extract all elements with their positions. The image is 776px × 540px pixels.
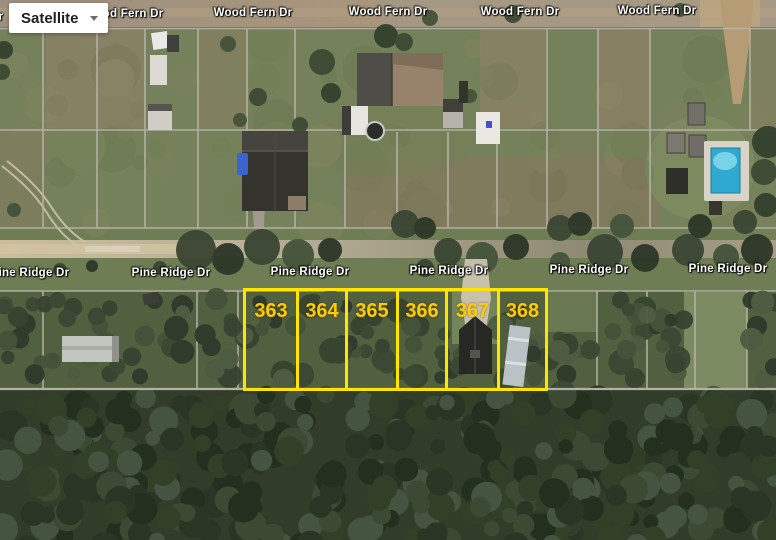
shed-mid-gray <box>443 112 463 128</box>
map-type-label: Satellite <box>21 10 79 27</box>
trailer-north <box>150 55 167 85</box>
parcel-366[interactable]: 366 <box>399 291 445 388</box>
parcel-number: 366 <box>405 301 438 321</box>
parcel-367[interactable]: 367 <box>448 291 497 388</box>
parcel-364[interactable]: 364 <box>299 291 345 388</box>
shed-east-3 <box>689 135 706 157</box>
parcel-number: 367 <box>456 301 489 321</box>
vehicle-van <box>151 31 169 50</box>
parcel-number: 364 <box>305 301 338 321</box>
parcel-368[interactable]: 368 <box>500 291 545 388</box>
trampoline <box>366 122 384 140</box>
parcel-outline: 363 364 365 366 367 368 <box>243 288 548 391</box>
parcel-number: 363 <box>254 301 287 321</box>
vehicle-dark <box>167 35 179 52</box>
satellite-map[interactable]: Wood Fern Dr Wood Fern Dr Wood Fern Dr W… <box>0 0 776 540</box>
vehicle-blue-car <box>237 153 248 175</box>
satellite-imagery <box>0 0 776 540</box>
trailer-home-west <box>62 336 119 362</box>
map-type-button[interactable]: Satellite <box>9 3 108 33</box>
house-main <box>242 131 308 211</box>
house-north <box>357 53 443 106</box>
shed-east-1 <box>688 103 705 125</box>
vehicle-truck <box>459 81 468 103</box>
parcel-number: 365 <box>355 301 388 321</box>
parcel-363[interactable]: 363 <box>246 291 296 388</box>
shed-east-2 <box>667 133 685 153</box>
chevron-down-icon <box>90 16 98 21</box>
parcel-365[interactable]: 365 <box>348 291 396 388</box>
parcel-number: 368 <box>506 301 539 321</box>
pool <box>704 141 749 201</box>
shed-east-dark <box>666 168 688 194</box>
